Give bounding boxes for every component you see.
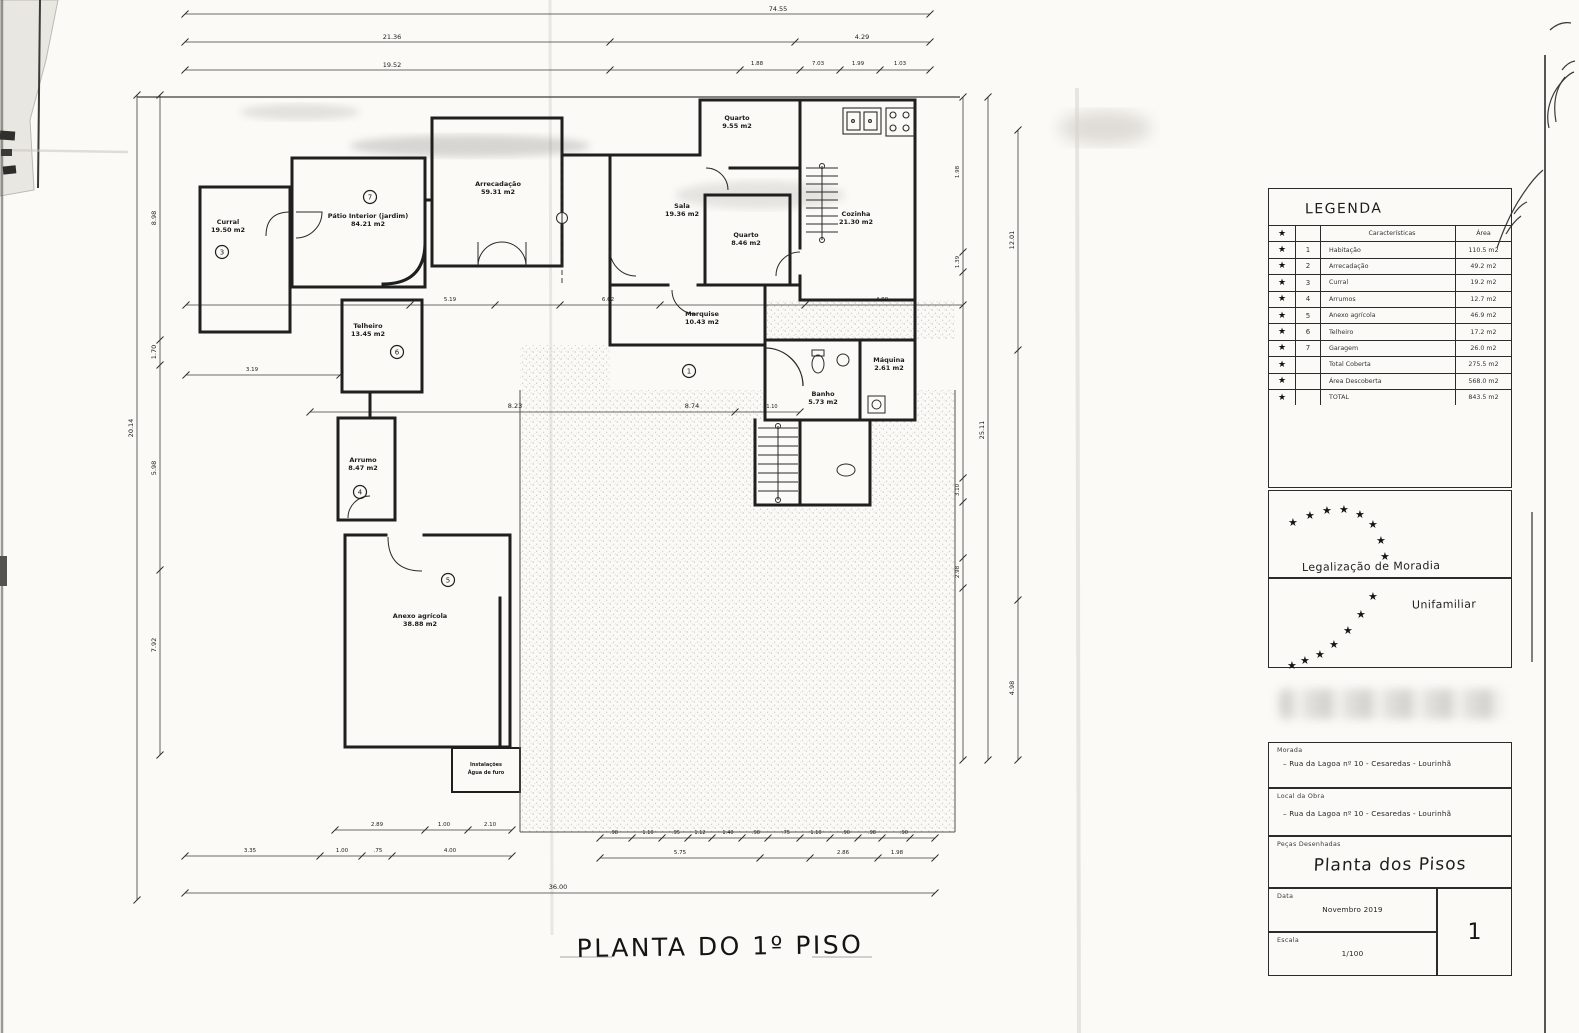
- star-icon: ★: [1305, 509, 1315, 522]
- room-name: Arrumo: [349, 456, 377, 464]
- room-area: Água de furo: [468, 769, 505, 776]
- legend-row-area: 19.2 m2: [1455, 275, 1511, 290]
- room-label: Marquise10.43 m2: [685, 310, 720, 326]
- legend-row: ★7Garagem26.0 m2: [1269, 340, 1511, 356]
- dimension-label: 2.86: [837, 850, 850, 856]
- legend-row-area: 843.5 m2: [1455, 390, 1511, 405]
- room-area: 19.36 m2: [665, 210, 699, 218]
- star-icon: ★: [1376, 534, 1386, 547]
- data-label: Data: [1277, 893, 1293, 900]
- star-icon: ★: [1269, 308, 1295, 323]
- room-name: Marquise: [685, 310, 719, 318]
- star-icon: ★: [1269, 275, 1295, 290]
- room-area: 2.61 m2: [874, 364, 904, 372]
- room-label: Máquina2.61 m2: [873, 356, 904, 372]
- room-name: Sala: [674, 202, 690, 210]
- room-area: 9.55 m2: [722, 122, 752, 130]
- room-area: 38.88 m2: [403, 620, 437, 628]
- room-label: Telheiro13.45 m26: [351, 322, 404, 359]
- room-number: 3: [220, 249, 224, 257]
- legend-row-number: 4: [1295, 292, 1321, 307]
- dimension-label: .95: [672, 830, 680, 836]
- dimension-label: 1.40: [722, 830, 733, 836]
- room-name: Telheiro: [353, 322, 383, 330]
- room-area: 10.43 m2: [685, 318, 719, 326]
- legend-header-num: [1295, 226, 1321, 241]
- star-icon: ★: [1315, 648, 1325, 661]
- dimension-label: 1.00: [438, 822, 451, 828]
- room-label: Sala19.36 m2: [665, 202, 699, 218]
- data-box: Data Novembro 2019: [1268, 888, 1437, 932]
- room-area: 19.50 m2: [211, 226, 245, 234]
- room-area: 13.45 m2: [351, 330, 385, 338]
- room-name: Quarto: [733, 231, 759, 239]
- star-icon: ★: [1322, 504, 1332, 517]
- room-name: Anexo agrícola: [393, 612, 447, 620]
- star-icon: ★: [1269, 259, 1295, 274]
- legend-row-description: Garagem: [1321, 341, 1455, 356]
- dimension-label: 8.74: [685, 402, 699, 410]
- legend-header-desc: Características: [1321, 226, 1455, 241]
- room-name: Quarto: [724, 114, 750, 122]
- dimension-label: 1.03: [894, 61, 907, 67]
- dimension-label: 8.23: [508, 402, 522, 410]
- room-area: 8.47 m2: [348, 464, 378, 472]
- star-icon: ★: [1269, 390, 1295, 405]
- dimension-label: .90: [900, 830, 908, 836]
- legend-row-description: Área Descoberta: [1321, 374, 1455, 389]
- escala-label: Escala: [1277, 937, 1299, 944]
- dimension-label: 5.75: [674, 850, 687, 856]
- legend-title: LEGENDA: [1305, 201, 1383, 218]
- dimension-label: 5.98: [150, 461, 158, 475]
- room-number: 6: [395, 349, 400, 357]
- pecas-label: Peças Desenhadas: [1277, 841, 1341, 848]
- legend-row: ★Total Coberta275.5 m2: [1269, 356, 1511, 372]
- dimension-label: 74.55: [769, 5, 788, 13]
- room-number: 1: [687, 368, 691, 376]
- room-label: 1: [683, 365, 696, 378]
- legend-row-description: Telheiro: [1321, 324, 1455, 339]
- star-icon: ★: [1343, 624, 1353, 637]
- room-area: 5.73 m2: [808, 398, 838, 406]
- dimension-label: .98: [752, 830, 760, 836]
- room-label: Anexo agrícola38.88 m25: [393, 574, 455, 629]
- dimension-label: 1.10: [766, 404, 777, 410]
- dimension-label: 2.89: [371, 822, 384, 828]
- dimension-label: 7.92: [150, 638, 158, 652]
- dimension-label: 3.35: [244, 848, 257, 854]
- star-icon: ★: [1269, 242, 1295, 257]
- room-number: 5: [446, 577, 450, 585]
- project-title-line1: Legalização de Moradia: [1302, 559, 1441, 574]
- dimension-label: .98: [610, 830, 618, 836]
- room-label: InstalaçõesÁgua de furo: [468, 762, 505, 776]
- star-icon: ★: [1355, 508, 1365, 521]
- dimension-label: 7.03: [812, 61, 825, 67]
- legend-row-number: 6: [1295, 324, 1321, 339]
- star-icon: ★: [1368, 518, 1378, 531]
- legend-row-description: Curral: [1321, 275, 1455, 290]
- dimension-label: 12.01: [1008, 231, 1016, 250]
- room-name: Banho: [811, 390, 835, 398]
- room-label: Quarto9.55 m2: [722, 114, 752, 130]
- legend-row-number: 2: [1295, 259, 1321, 274]
- dimension-label: 3.19: [246, 367, 259, 373]
- room-number: 7: [368, 194, 372, 202]
- legend-row-area: 49.2 m2: [1455, 259, 1511, 274]
- drawing-title: Planta dos Pisos: [1269, 854, 1512, 876]
- legend-row: ★1Habitação110.5 m2: [1269, 241, 1511, 257]
- legend-row-description: Anexo agrícola: [1321, 308, 1455, 323]
- legend-header-area: Área: [1455, 226, 1511, 241]
- legend-row-number: 1: [1295, 242, 1321, 257]
- legend-row-description: Arrecadação: [1321, 259, 1455, 274]
- legend-row-description: Arrumos: [1321, 292, 1455, 307]
- legend-row-description: Habitação: [1321, 242, 1455, 257]
- dimension-label: 4.00: [444, 848, 457, 854]
- room-area: 59.31 m2: [481, 188, 515, 196]
- room-name: Arrecadação: [475, 180, 521, 188]
- star-icon: ★: [1288, 516, 1298, 529]
- legend-row-area: 110.5 m2: [1455, 242, 1511, 257]
- room-name: Máquina: [873, 356, 904, 364]
- legend-row: ★5Anexo agrícola46.9 m2: [1269, 307, 1511, 323]
- project-title-line2: Unifamiliar: [1412, 598, 1476, 612]
- dimension-label: 4.88: [876, 297, 889, 303]
- legend-box: LEGENDA ★ Características Área ★1Habitaç…: [1268, 188, 1512, 488]
- star-icon: ★: [1269, 324, 1295, 339]
- star-icon: ★: [1269, 341, 1295, 356]
- star-icon: ★: [1300, 654, 1310, 667]
- dimension-label: 25.11: [978, 421, 986, 440]
- dimension-label: 1.39: [955, 255, 961, 268]
- legend-row-area: 26.0 m2: [1455, 341, 1511, 356]
- legend-row: ★6Telheiro17.2 m2: [1269, 323, 1511, 339]
- legend-row: ★Área Descoberta568.0 m2: [1269, 373, 1511, 389]
- local-obra-box: Local da Obra – Rua da Lagoa nº 10 - Ces…: [1268, 788, 1512, 836]
- legend-row-area: 46.9 m2: [1455, 308, 1511, 323]
- escala-value: 1/100: [1269, 949, 1436, 958]
- room-area: 21.30 m2: [839, 218, 873, 226]
- legend-row-number: 7: [1295, 341, 1321, 356]
- dimension-label: 1.12: [694, 830, 705, 836]
- legend-row: ★2Arrecadação49.2 m2: [1269, 258, 1511, 274]
- star-icon: ★: [1269, 374, 1295, 389]
- room-label: Quarto8.46 m2: [731, 231, 761, 247]
- legend-row: ★3Curral19.2 m2: [1269, 274, 1511, 290]
- room-area: 8.46 m2: [731, 239, 761, 247]
- dimension-label: 1.99: [852, 61, 865, 67]
- room-label: Pátio Interior (jardim)84.21 m27: [328, 191, 408, 229]
- dimension-label: 20.14: [127, 419, 135, 438]
- dimension-label: 1.98: [955, 165, 961, 178]
- room-label: Curral19.50 m23: [211, 218, 245, 259]
- dimension-label: 1.88: [751, 61, 764, 67]
- legend-row-area: 12.7 m2: [1455, 292, 1511, 307]
- dimension-label: 2.10: [484, 822, 497, 828]
- dimension-label: 4.98: [1008, 681, 1016, 695]
- local-obra-label: Local da Obra: [1277, 793, 1324, 800]
- dimension-label: 21.36: [383, 33, 402, 41]
- legend-row-number: [1295, 390, 1321, 405]
- legend-row-area: 275.5 m2: [1455, 357, 1511, 372]
- legend-row: ★4Arrumos12.7 m2: [1269, 291, 1511, 307]
- star-icon: ★: [1269, 226, 1295, 241]
- room-number: 4: [358, 489, 363, 497]
- morada-box: Morada – Rua da Lagoa nº 10 - Cesaredas …: [1268, 742, 1512, 788]
- room-name: Cozinha: [842, 210, 871, 218]
- room-name: Pátio Interior (jardim): [328, 212, 408, 220]
- dimension-label: 1.00: [336, 848, 349, 854]
- legend-row-description: TOTAL: [1321, 390, 1455, 405]
- kitchen-sink-icon: [843, 108, 881, 134]
- legend-row-description: Total Coberta: [1321, 357, 1455, 372]
- plan-title: PLANTA DO 1º PISO: [555, 930, 885, 964]
- legend-row: ★TOTAL843.5 m2: [1269, 389, 1511, 405]
- dimension-label: 6.62: [602, 297, 614, 303]
- dimension-label: 5.19: [444, 297, 457, 303]
- dimension-label: 1.10: [810, 830, 821, 836]
- dimension-label: .90: [842, 830, 850, 836]
- dimension-label: 8.98: [150, 211, 158, 225]
- legend-table: ★ Características Área ★1Habitação110.5 …: [1269, 225, 1511, 405]
- legend-row-area: 17.2 m2: [1455, 324, 1511, 339]
- stove-icon: [886, 108, 914, 136]
- star-icon: ★: [1287, 659, 1297, 672]
- legend-row-number: 3: [1295, 275, 1321, 290]
- room-name: Curral: [217, 218, 239, 226]
- local-obra-value: – Rua da Lagoa nº 10 - Cesaredas - Louri…: [1283, 809, 1451, 818]
- star-icon: ★: [1269, 292, 1295, 307]
- dimension-label: 1.98: [891, 850, 904, 856]
- star-icon: ★: [1368, 590, 1378, 603]
- sheet-number: 1: [1437, 888, 1512, 976]
- redacted-name: [1279, 689, 1505, 719]
- morada-value: – Rua da Lagoa nº 10 - Cesaredas - Louri…: [1283, 759, 1451, 768]
- dimension-label: 4.29: [855, 33, 869, 41]
- legend-row-number: 5: [1295, 308, 1321, 323]
- room-area: 84.21 m2: [351, 220, 385, 228]
- data-value: Novembro 2019: [1269, 905, 1436, 914]
- legend-header-row: ★ Características Área: [1269, 225, 1511, 241]
- dimension-label: 2.98: [955, 565, 961, 578]
- dimension-label: .75: [782, 830, 790, 836]
- dimension-label: 3.10: [955, 483, 961, 496]
- dimension-label: 1.70: [150, 345, 158, 359]
- dimension-label: .75: [374, 848, 383, 854]
- dimension-label: 19.52: [383, 61, 402, 69]
- morada-label: Morada: [1277, 747, 1302, 754]
- star-icon: ★: [1269, 357, 1295, 372]
- legend-row-number: [1295, 374, 1321, 389]
- room-label: Banho5.73 m2: [808, 390, 838, 406]
- scanned-drawing-page: Curral19.50 m23Pátio Interior (jardim)84…: [0, 0, 1579, 1033]
- star-icon: ★: [1329, 638, 1339, 651]
- star-icon: ★: [1339, 503, 1349, 516]
- legend-row-area: 568.0 m2: [1455, 374, 1511, 389]
- room-name: Instalações: [470, 762, 502, 768]
- dimension-label: 1.10: [642, 830, 653, 836]
- legend-row-number: [1295, 357, 1321, 372]
- dimension-label: 36.00: [549, 883, 568, 891]
- room-label: Arrecadação59.31 m2: [475, 180, 521, 196]
- dimension-label: .98: [868, 830, 876, 836]
- escala-box: Escala 1/100: [1268, 932, 1437, 976]
- pecas-box: Peças Desenhadas Planta dos Pisos: [1268, 836, 1512, 888]
- room-label: Cozinha21.30 m2: [839, 210, 873, 226]
- star-icon: ★: [1356, 608, 1366, 621]
